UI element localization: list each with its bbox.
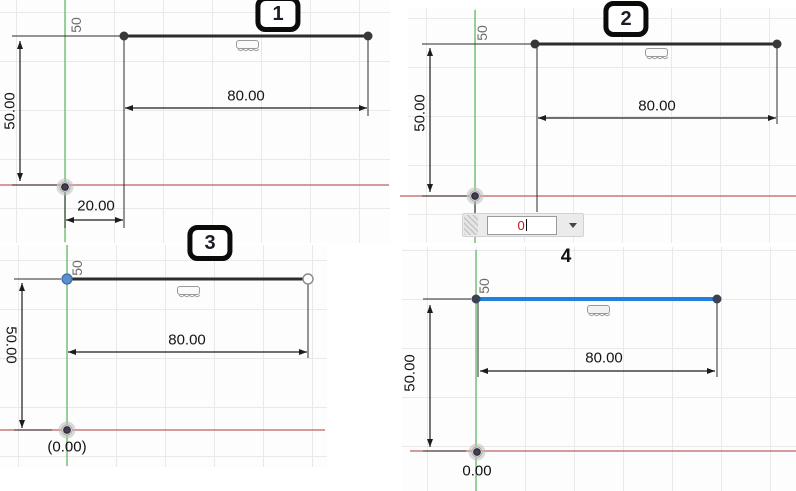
origin-point[interactable] bbox=[467, 188, 484, 205]
origin-point[interactable] bbox=[59, 422, 76, 439]
dimension-input-widget: 0 bbox=[462, 213, 584, 237]
origin-coordinate-label: 0.00 bbox=[462, 464, 491, 479]
horizontal-constraint-icon[interactable] bbox=[237, 41, 259, 51]
dimension-input-value: 0 bbox=[517, 219, 524, 232]
length-dim-value[interactable]: 80.00 bbox=[638, 99, 676, 114]
witness-lines bbox=[423, 299, 717, 451]
length-dim-value[interactable]: 80.00 bbox=[168, 333, 206, 348]
vertical-dimension[interactable] bbox=[427, 305, 433, 447]
horizontal-constraint-icon[interactable] bbox=[646, 49, 668, 59]
line-endpoint[interactable] bbox=[531, 40, 540, 49]
drag-grip-icon[interactable] bbox=[464, 215, 478, 235]
line-endpoint-open[interactable] bbox=[303, 274, 313, 284]
panel-step-1: 80.00 20.00 50.00 50 bbox=[0, 0, 396, 245]
origin-point[interactable] bbox=[469, 444, 486, 461]
panel-step-2: 80.00 50.00 50 0 bbox=[396, 0, 796, 245]
panel-step-3: 80.00 50.00 50 (0.00) bbox=[0, 245, 396, 491]
step-number-badge: 2 bbox=[603, 1, 648, 37]
origin-point[interactable] bbox=[57, 179, 74, 196]
sketch-geometry bbox=[0, 0, 396, 245]
witness-lines bbox=[14, 279, 308, 430]
line-endpoint[interactable] bbox=[120, 32, 129, 41]
step-number-label: 4 bbox=[561, 246, 572, 268]
sketch-geometry bbox=[396, 0, 796, 245]
text-cursor bbox=[526, 219, 527, 231]
four-step-sketch-figure: 80.00 20.00 50.00 50 bbox=[0, 0, 796, 491]
vertical-dim-value[interactable]: 50.00 bbox=[3, 92, 18, 130]
dimension-value-input[interactable]: 0 bbox=[487, 216, 557, 235]
vertical-dim-value[interactable]: 50.00 bbox=[4, 326, 19, 364]
length-dimension[interactable] bbox=[125, 105, 367, 111]
vertical-dimension[interactable] bbox=[19, 283, 25, 428]
vertical-dim-value[interactable]: 50.00 bbox=[413, 94, 428, 132]
line-endpoint[interactable] bbox=[364, 32, 373, 41]
vertical-dim-value[interactable]: 50.00 bbox=[403, 354, 418, 392]
length-dim-value[interactable]: 80.00 bbox=[585, 351, 623, 366]
length-dimension[interactable] bbox=[480, 368, 715, 374]
offset-dimension[interactable] bbox=[66, 217, 123, 223]
line-endpoint[interactable] bbox=[472, 295, 481, 304]
axis-offset-label: 50 bbox=[475, 25, 489, 41]
horizontal-constraint-icon[interactable] bbox=[588, 306, 610, 316]
step-number-badge: 1 bbox=[255, 0, 300, 32]
axis-offset-label: 50 bbox=[70, 260, 84, 276]
offset-dim-value[interactable]: 20.00 bbox=[77, 199, 115, 214]
sketch-geometry bbox=[396, 245, 796, 491]
line-endpoint[interactable] bbox=[773, 40, 782, 49]
axis-offset-label: 50 bbox=[69, 17, 83, 33]
horizontal-constraint-icon[interactable] bbox=[178, 287, 200, 297]
length-dimension[interactable] bbox=[68, 349, 307, 355]
panel-step-4: 80.00 50.00 50 0.00 bbox=[396, 245, 796, 491]
origin-coordinate-label: (0.00) bbox=[47, 440, 86, 455]
step-number-badge: 3 bbox=[187, 225, 232, 261]
length-dimension[interactable] bbox=[538, 115, 776, 121]
dropdown-arrow-icon[interactable] bbox=[569, 223, 577, 228]
length-dim-value[interactable]: 80.00 bbox=[227, 89, 265, 104]
axis-offset-label: 50 bbox=[477, 278, 491, 294]
line-endpoint[interactable] bbox=[713, 295, 722, 304]
